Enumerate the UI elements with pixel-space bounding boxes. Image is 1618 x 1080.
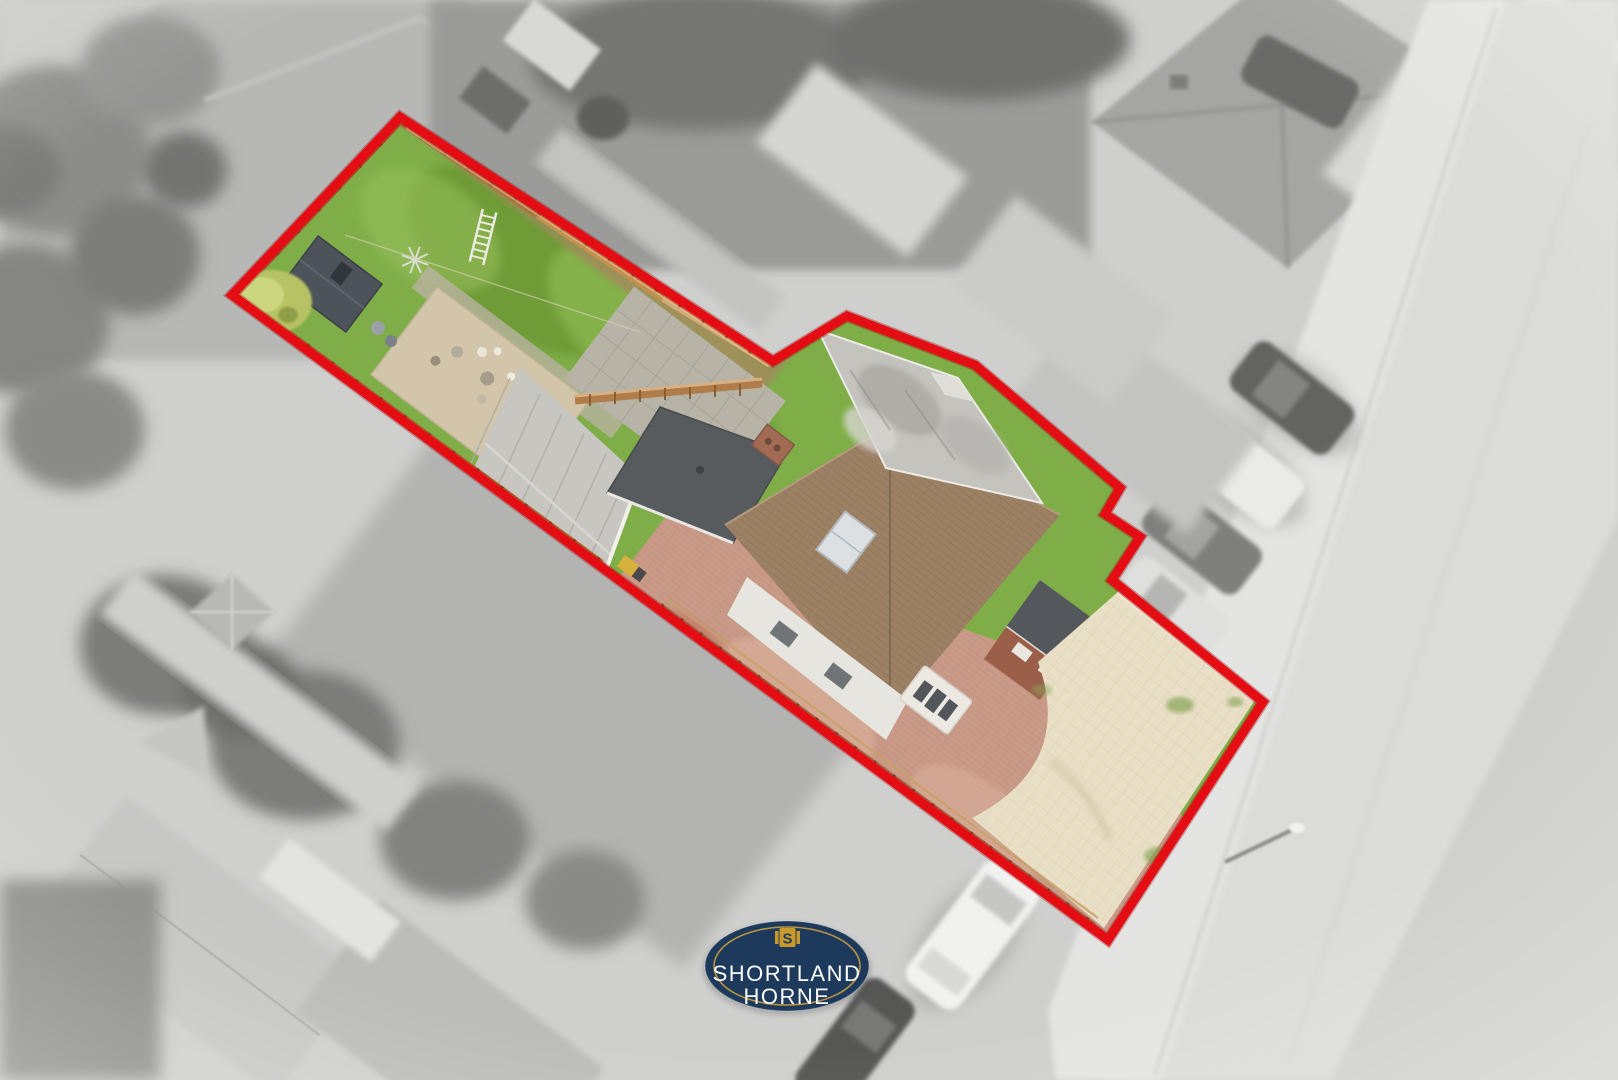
vignette-overlay bbox=[0, 0, 1618, 1080]
logo-badge: S SHORTLAND HORNE bbox=[703, 921, 871, 1015]
logo-line1: SHORTLAND bbox=[713, 961, 862, 986]
aerial-property-photo: S SHORTLAND HORNE bbox=[0, 0, 1618, 1080]
logo-line2: HORNE bbox=[744, 984, 831, 1009]
aerial-photo-svg: S SHORTLAND HORNE bbox=[0, 0, 1618, 1080]
logo-monogram-letter: S bbox=[782, 931, 792, 948]
